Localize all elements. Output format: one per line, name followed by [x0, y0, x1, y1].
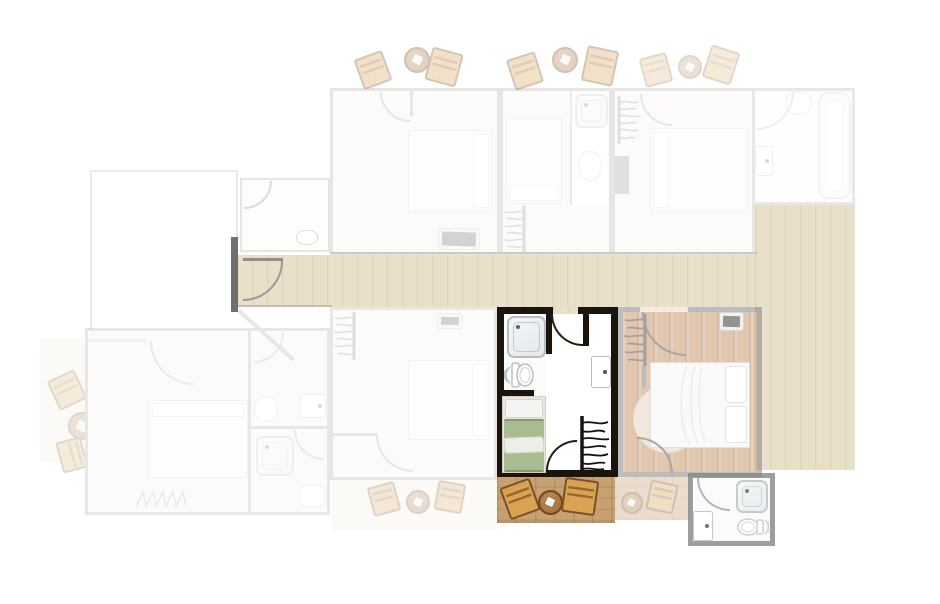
wardrobe-rail-icon	[333, 312, 357, 360]
balcony-north-middle	[505, 40, 629, 92]
sink-icon	[300, 394, 326, 418]
tv-icon	[438, 228, 480, 250]
room-double-bedroom-east	[618, 307, 762, 477]
chair-icon	[581, 45, 620, 87]
southwest-rooms-faded	[0, 300, 520, 604]
double-bed	[408, 130, 492, 212]
chair-icon	[367, 481, 402, 517]
chair-icon	[499, 478, 541, 521]
tv-icon	[437, 313, 463, 329]
bed-throw	[504, 436, 545, 453]
double-bed	[650, 128, 748, 212]
room-bedroom-north-east	[612, 88, 755, 255]
washbasin-icon	[591, 356, 611, 388]
bed-pillow	[653, 132, 669, 208]
balcony-north-east	[636, 44, 748, 94]
tv-icon	[615, 156, 629, 194]
inner-wall	[88, 339, 146, 342]
bathtub-icon	[818, 92, 851, 199]
entry-pier	[583, 314, 589, 346]
chair-icon	[701, 44, 740, 86]
wardrobe-rail-icon	[616, 96, 640, 144]
double-bed	[408, 360, 490, 440]
balcony-north-west	[348, 40, 472, 90]
sink-icon	[755, 146, 773, 176]
wall-stub	[410, 88, 413, 116]
bed-pillow	[725, 406, 747, 443]
inner-wall	[333, 433, 377, 436]
toilet-icon	[737, 516, 769, 538]
wall-right	[611, 307, 618, 477]
double-bed	[650, 362, 750, 448]
shower-icon	[575, 94, 608, 128]
bed-fold-lines	[657, 364, 717, 446]
terrace-east-floor	[755, 205, 855, 470]
table-icon	[406, 490, 430, 514]
chair-icon	[561, 477, 600, 516]
bed-pillow	[725, 366, 747, 403]
chair-icon	[55, 436, 88, 474]
chair-icon	[424, 46, 464, 87]
terrace-south-deck	[497, 477, 615, 523]
balcony-middle-south	[332, 480, 495, 530]
bed-pillow	[505, 399, 543, 418]
chair-icon	[434, 480, 467, 514]
toilet-icon	[298, 484, 326, 508]
wardrobe-rail-icon	[623, 314, 649, 366]
room-bathroom-southeast	[688, 473, 775, 546]
chair-icon	[47, 369, 88, 411]
bed-pillow	[472, 364, 487, 436]
entry-door-opening	[553, 307, 578, 314]
toilet-icon	[254, 396, 278, 422]
terrace-south-deck-faded	[615, 477, 690, 520]
bed-pillow	[509, 185, 559, 201]
room-studio-highlighted[interactable]	[497, 307, 618, 477]
chair-icon	[506, 51, 544, 91]
room-bedroom-north-middle	[500, 88, 612, 255]
bed-pillow	[152, 403, 244, 417]
corridor-top-edge	[330, 252, 757, 254]
shower-icon	[736, 480, 768, 513]
room-bathroom-northeast	[752, 88, 855, 205]
door-arc	[150, 341, 194, 385]
door-arc	[697, 478, 730, 511]
chair-icon	[639, 52, 674, 88]
door-arc	[294, 430, 324, 460]
door-arc	[640, 94, 672, 126]
wardrobe-rail-icon	[577, 416, 611, 472]
chair-icon	[353, 50, 392, 90]
table-icon	[678, 55, 702, 79]
double-bed	[506, 118, 562, 204]
bed-pillow	[473, 134, 489, 208]
double-bed	[148, 400, 248, 478]
single-bed	[502, 396, 546, 473]
floor-plan-canvas	[0, 0, 940, 604]
door-arc	[756, 92, 794, 130]
wall-stub	[642, 366, 646, 388]
sink-icon	[693, 511, 713, 541]
radiator-zigzag	[136, 490, 192, 510]
inner-wall	[248, 331, 251, 513]
wall-top-right	[578, 307, 618, 314]
shower-icon	[507, 316, 546, 358]
inner-wall	[248, 426, 330, 429]
toilet-icon	[578, 151, 602, 181]
shower-icon	[256, 436, 294, 476]
toilet-icon	[504, 358, 534, 392]
room-bedroom-middle-south	[330, 307, 497, 480]
table-icon	[538, 490, 563, 515]
chair-icon	[645, 479, 679, 514]
wall-top-left	[497, 307, 553, 314]
wardrobe-rail-icon	[503, 206, 527, 252]
door-arc	[380, 92, 410, 122]
table-icon	[552, 47, 578, 73]
ensuite-bathroom	[570, 91, 609, 205]
room-bedroom-north-west	[330, 88, 500, 255]
table-icon	[621, 492, 643, 514]
door-arc	[376, 435, 413, 472]
tv-icon	[719, 312, 744, 331]
